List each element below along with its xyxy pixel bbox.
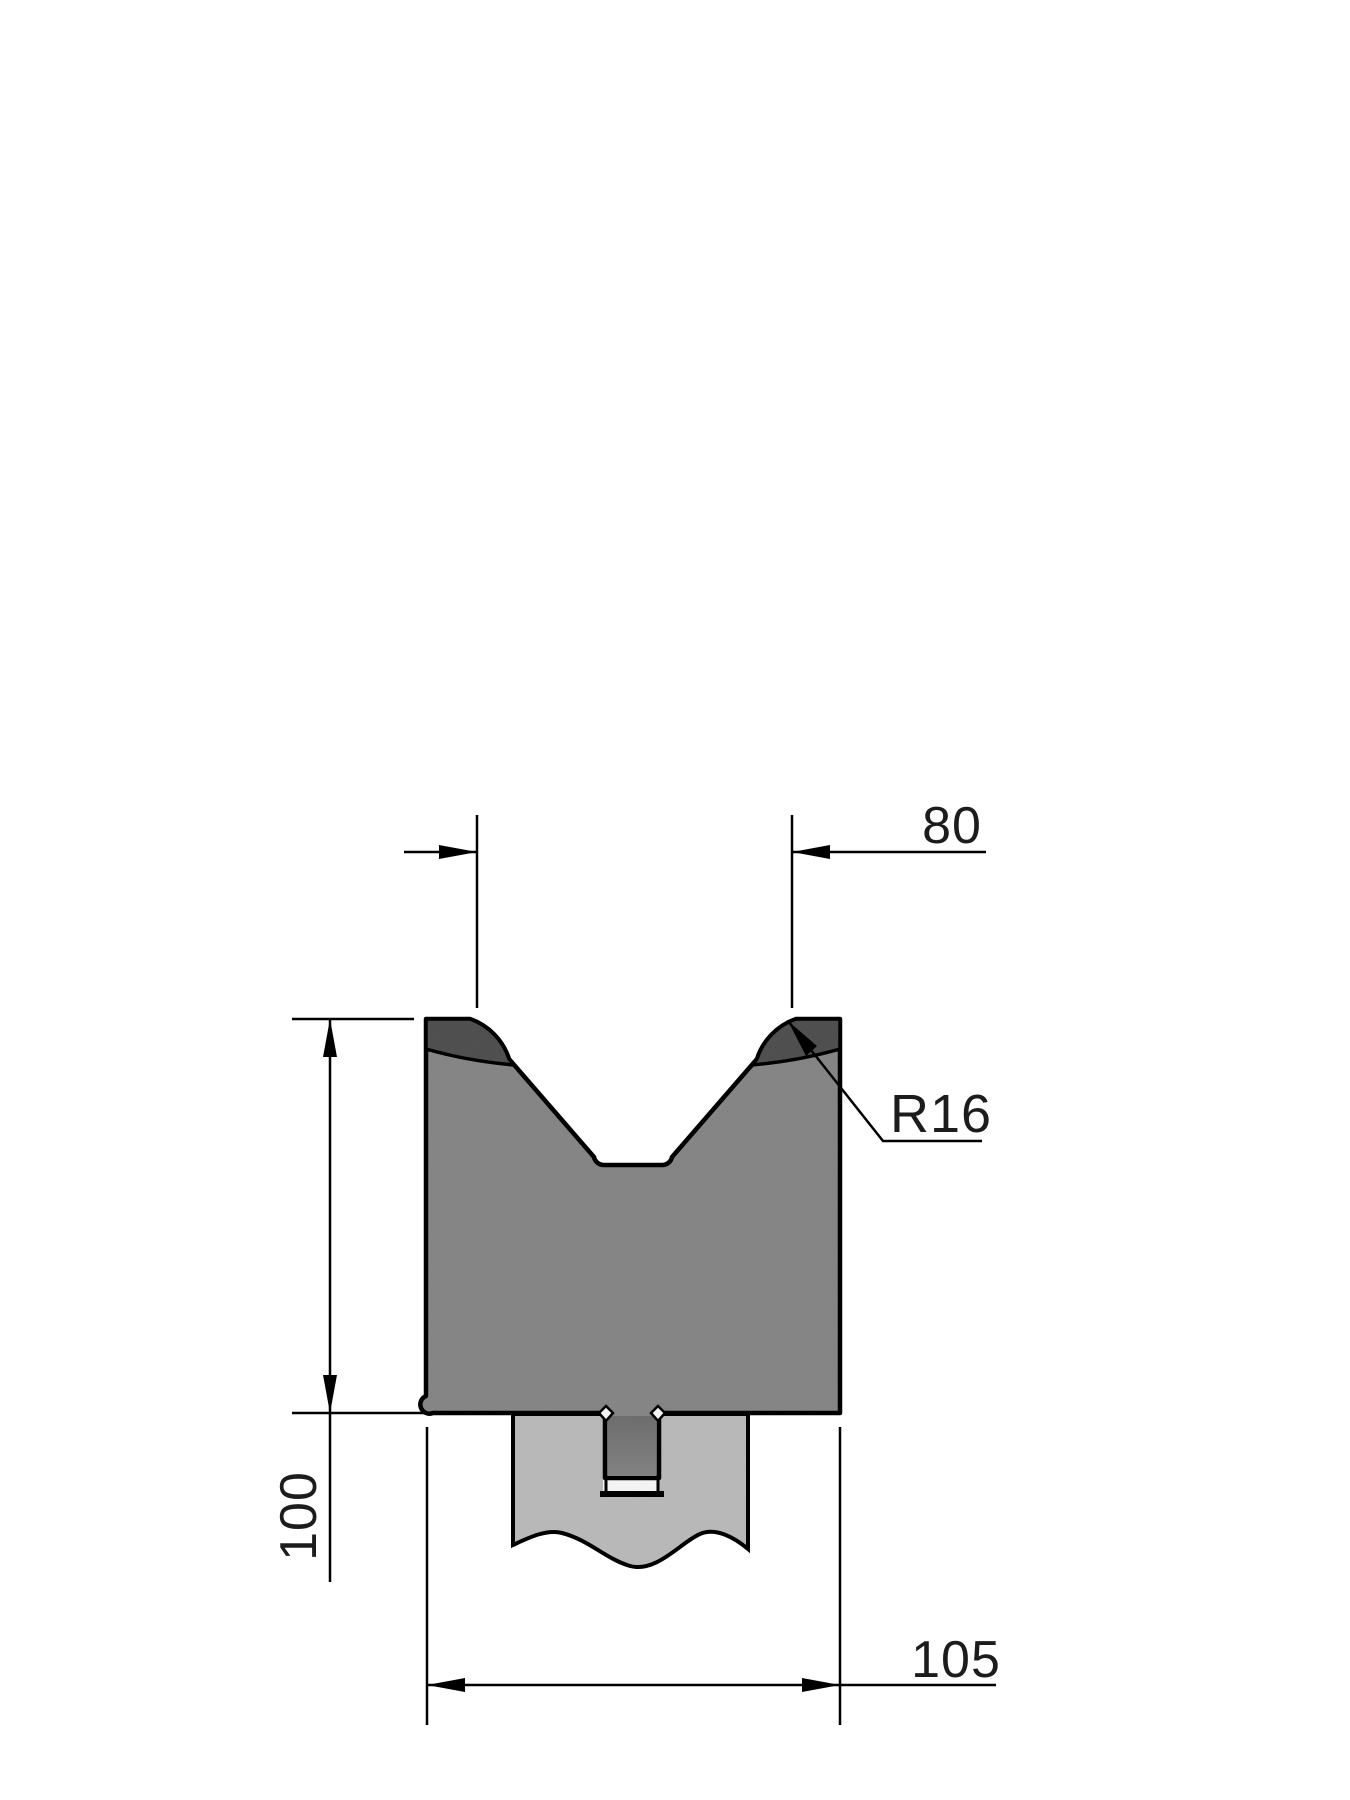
tenon-shading: [608, 1416, 656, 1476]
dim-label-die-height: 100: [270, 1471, 328, 1561]
dim-label-v-opening-width: 80: [922, 797, 982, 855]
v-die-cross-section-drawing: 80 100 105 R16: [0, 0, 1350, 1800]
leader-label-radius: R16: [890, 1084, 992, 1144]
technical-drawing-page: 80 100 105 R16: [0, 0, 1350, 1800]
dim-label-die-width: 105: [911, 1631, 1001, 1689]
